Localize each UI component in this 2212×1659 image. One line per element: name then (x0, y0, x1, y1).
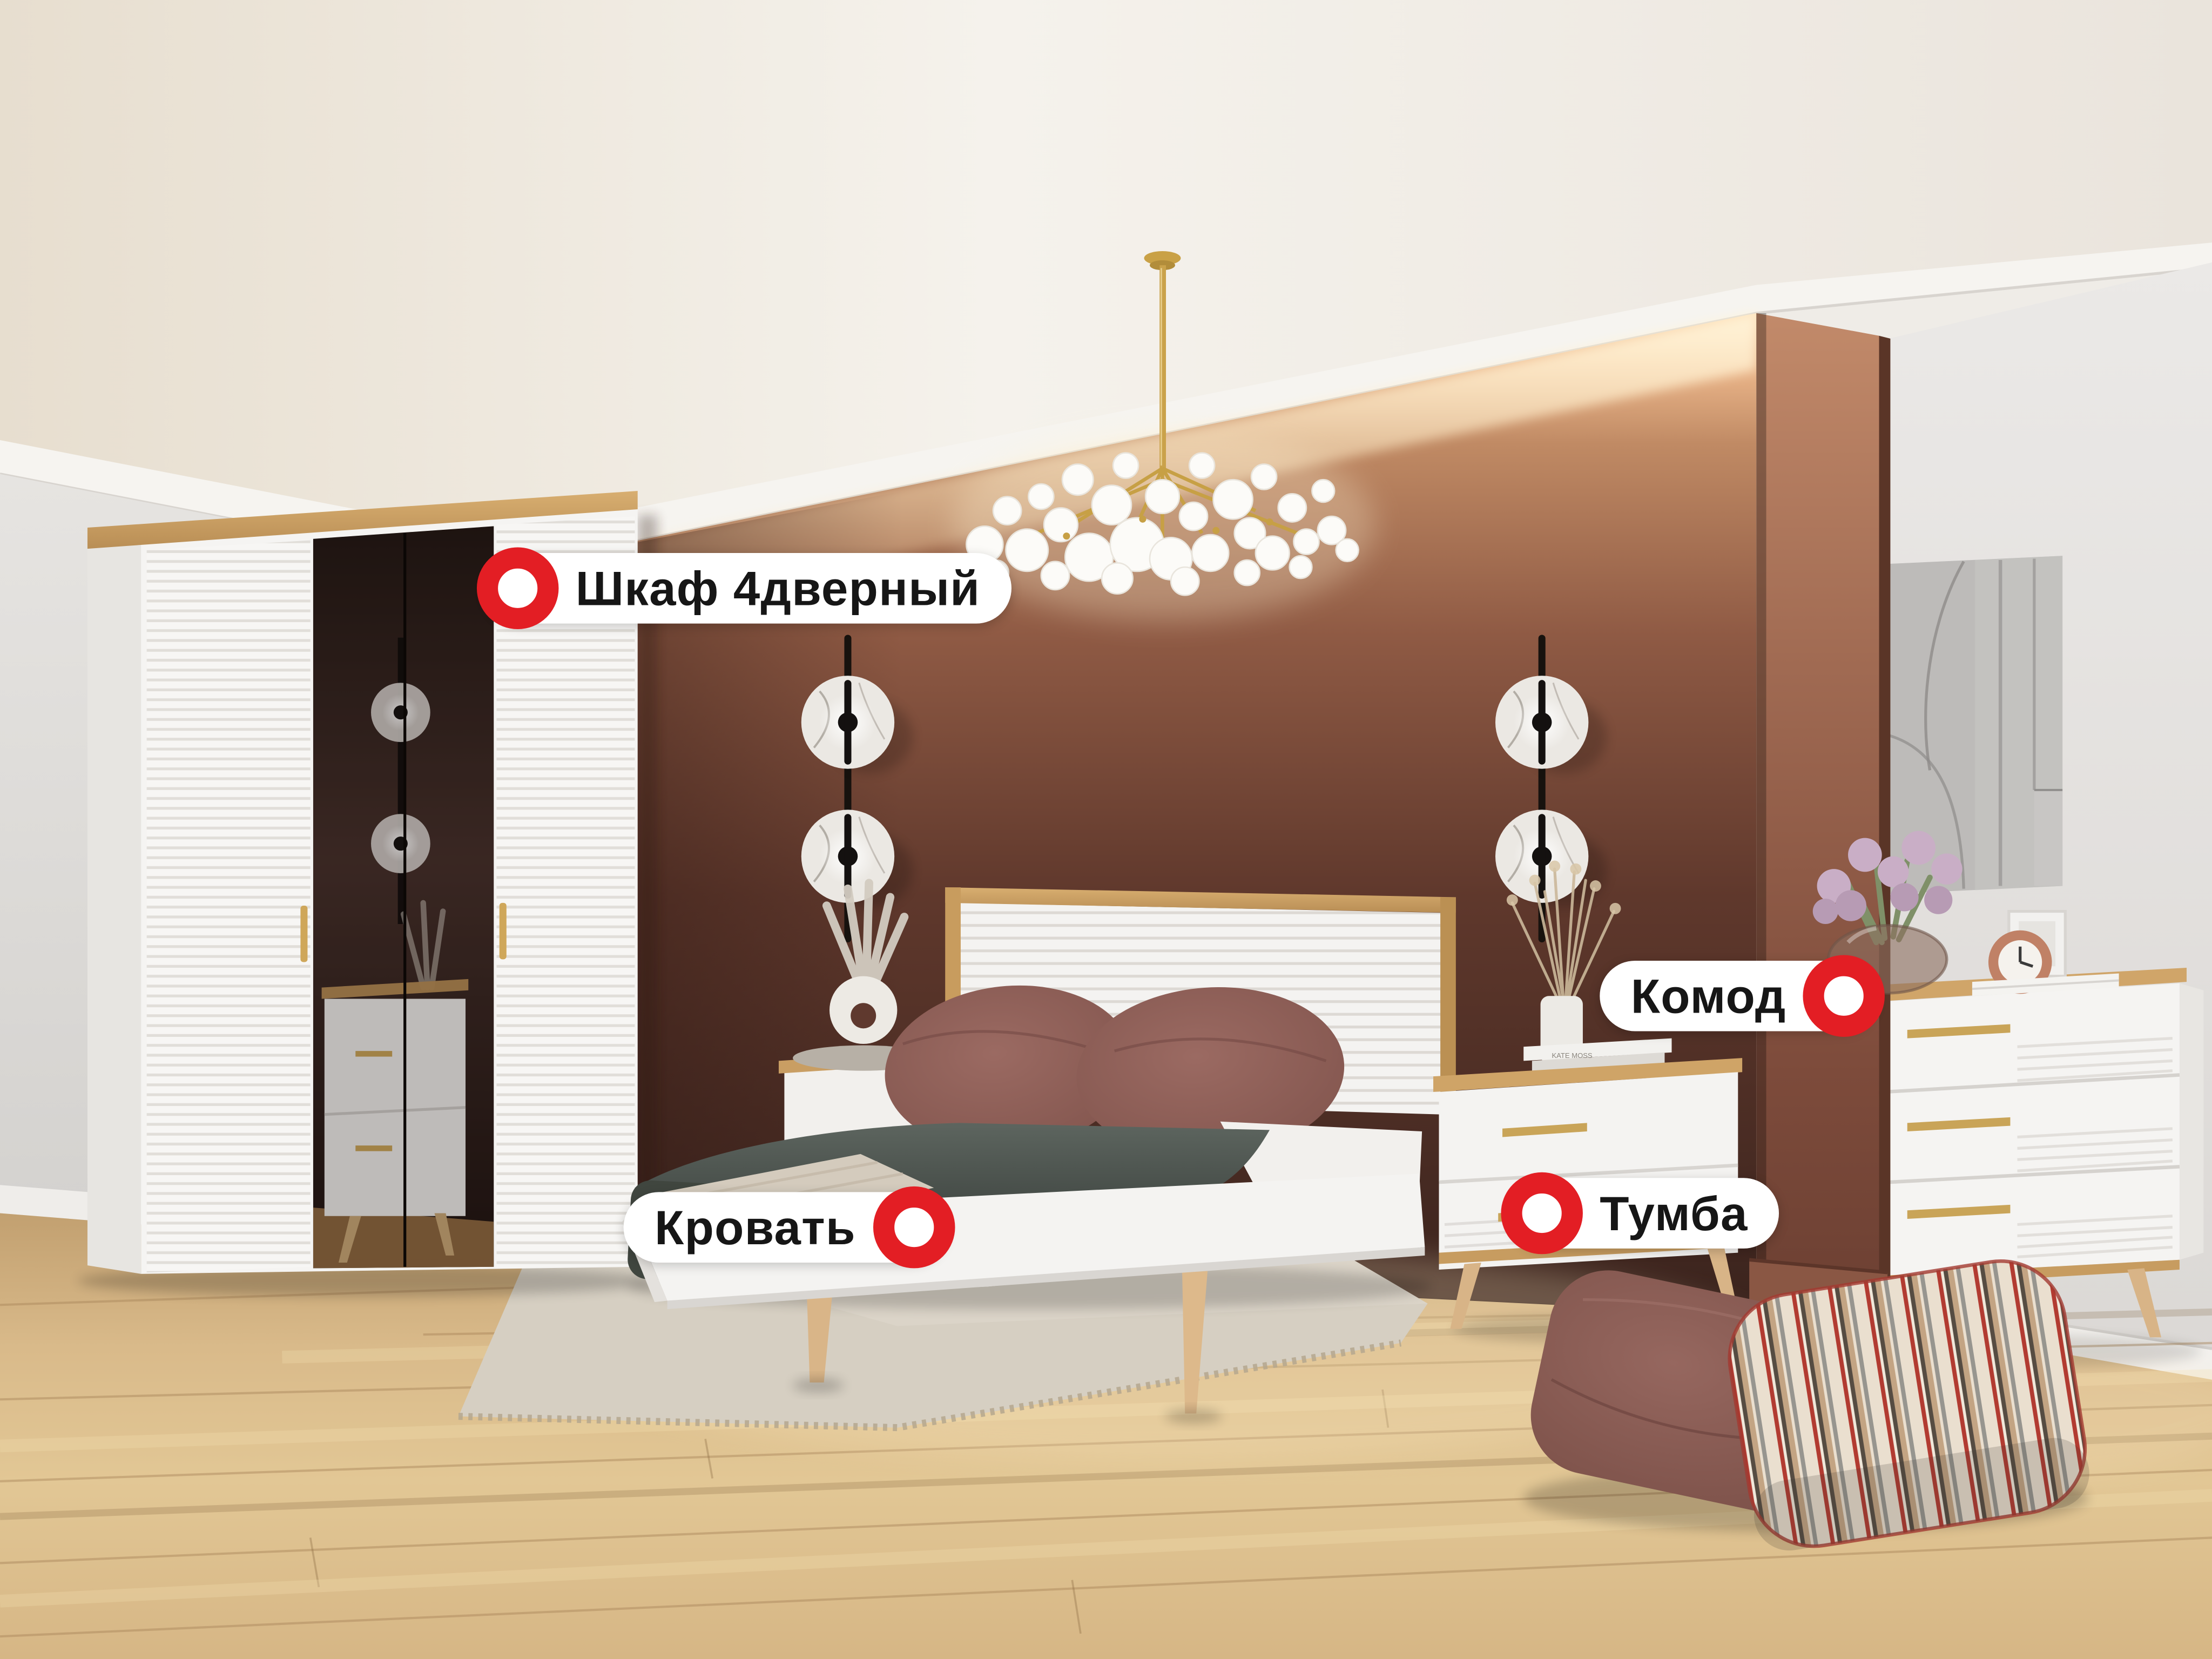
book-spine-title: KATE MOSS (1552, 1051, 1592, 1060)
wardrobe-left-side (87, 542, 141, 1274)
chest-side (2180, 983, 2203, 1260)
hotspot-wardrobe-label: Шкаф 4дверный (576, 566, 980, 614)
screenshot-root: KATE MOSS (0, 0, 2212, 1659)
hotspot-nightstand-label: Тумба (1600, 1191, 1748, 1239)
wardrobe-handle-right (500, 903, 507, 959)
floor-pillow-striped (1720, 1252, 2094, 1555)
scene-render: KATE MOSS (0, 0, 2212, 1659)
hotspot-chest-label: Комод (1631, 973, 1786, 1021)
hotspot-marker-icon[interactable] (1803, 955, 1885, 1037)
floor-pillows (1520, 1252, 2094, 1555)
hotspot-marker-icon[interactable] (1501, 1172, 1583, 1255)
hotspot-chest[interactable]: Комод (1600, 961, 1876, 1031)
accent-wall-column (1749, 313, 1890, 1332)
wardrobe-handle-left (300, 906, 307, 962)
wall-art (1872, 556, 2062, 894)
bedroom-render-stage: KATE MOSS (0, 0, 2212, 1659)
hotspot-bed[interactable]: Кровать (624, 1192, 946, 1263)
hotspot-bed-label: Кровать (655, 1205, 856, 1253)
hotspot-marker-icon[interactable] (873, 1186, 955, 1269)
wardrobe-louver-door-left (147, 540, 311, 1272)
hotspot-wardrobe[interactable]: Шкаф 4дверный (485, 553, 1011, 624)
hotspot-marker-icon[interactable] (477, 548, 559, 630)
hotspot-nightstand[interactable]: Тумба (1509, 1178, 1779, 1249)
